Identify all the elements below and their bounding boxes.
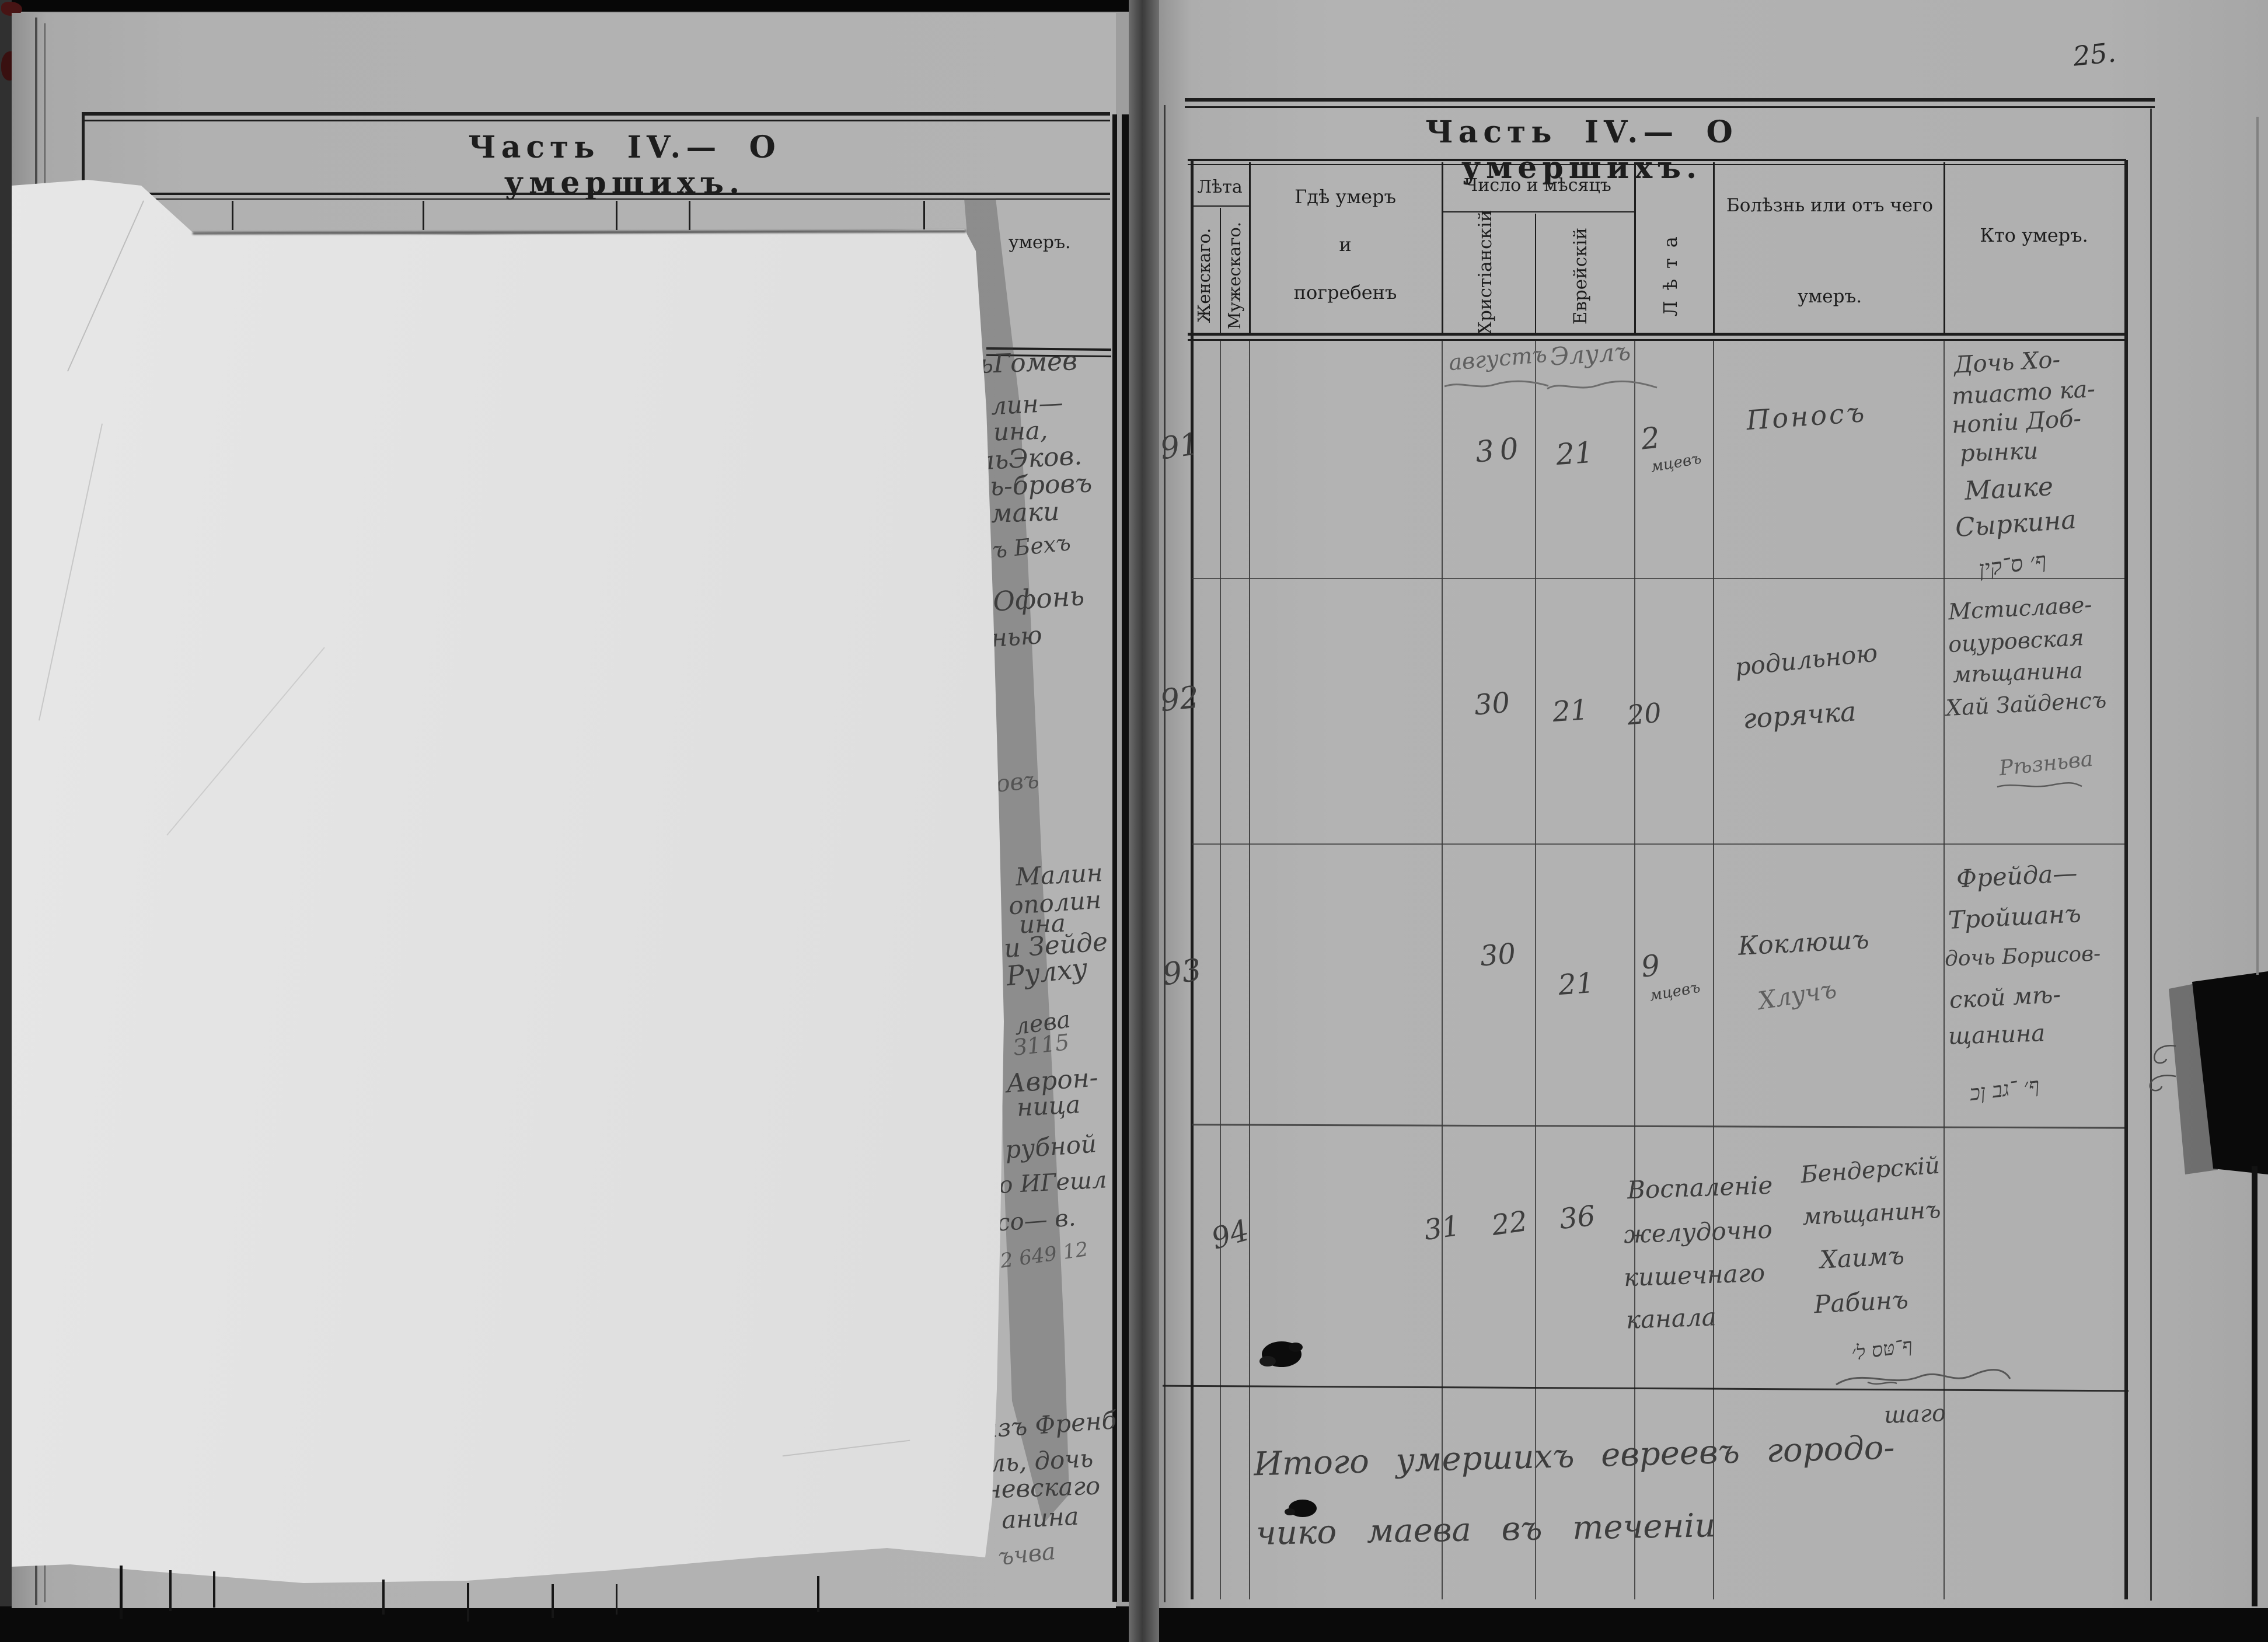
left-bottom-tick-2	[169, 1570, 172, 1611]
column-header-male-text: Мужескаго.	[1224, 222, 1244, 329]
page-number: 25.	[2071, 36, 2117, 72]
right-table-outer-right-line	[2150, 109, 2152, 1601]
left-table-left-border	[82, 114, 85, 231]
row2-signature-flourish	[1996, 781, 2084, 790]
row4-who-line: Хаимъ	[1819, 1241, 1905, 1274]
leta-group-underline	[1191, 205, 1249, 207]
left-fragment: ница	[1016, 1090, 1081, 1122]
column-header-disease-line1: Болѣзнь или отъ чего	[1716, 195, 1943, 216]
column-header-age-vertical-text: Лѣта	[1659, 226, 1681, 316]
col-split-age-disease	[1713, 162, 1715, 333]
col-split-disease-who	[1943, 162, 1945, 333]
left-fragment: анина	[1001, 1502, 1080, 1535]
row4-christian-day: 31	[1422, 1209, 1461, 1247]
row1-who-line: Маике	[1964, 472, 2054, 506]
row1-christian-day: 30	[1474, 431, 1526, 469]
row1-who-line: Дочь Хо-	[1953, 346, 2061, 378]
left-column-tick-3	[616, 201, 617, 230]
row4-disease-line: Воспаленіе	[1627, 1171, 1773, 1205]
ink-blot-summary	[1282, 1494, 1320, 1522]
column-header-jewish-text: Еврейскій	[1570, 228, 1591, 325]
left-header-rule-2	[82, 198, 1110, 200]
row2-jewish-day: 21	[1551, 693, 1589, 728]
right-header-bottom-rule-2	[1188, 339, 2126, 341]
summary-line: чико маева въ теченіи	[1255, 1507, 1715, 1553]
body-line-male-where	[1249, 341, 1250, 1599]
row2-entry-number: 92	[1159, 680, 1201, 719]
left-bottom-tick-8	[817, 1576, 819, 1612]
col-split-female-male	[1220, 208, 1221, 333]
row4-age: 36	[1558, 1200, 1597, 1236]
month-header-jewish-text: Элулъ	[1549, 337, 1631, 371]
left-bottom-tick-1	[120, 1566, 123, 1619]
column-header-leta-group-text: Лѣта	[1197, 177, 1243, 197]
column-header-disease-text-2: умеръ.	[1798, 286, 1862, 307]
row3-jewish-day: 21	[1557, 967, 1595, 1002]
column-header-who: Кто умеръ.	[1946, 224, 2122, 246]
left-column-tick-5	[923, 201, 925, 230]
pen-curl-1	[2149, 1043, 2178, 1066]
column-header-where-text-1: Гдѣ умеръ	[1294, 186, 1396, 208]
left-page-stack-edge-1	[35, 18, 37, 1605]
body-line-christian-jewish	[1535, 341, 1536, 1599]
column-header-male: Мужескаго.	[1224, 220, 1244, 331]
col-split-male-where	[1249, 162, 1251, 333]
column-header-disease-text-1: Болѣзнь или отъ чего	[1726, 195, 1933, 216]
row1-who-line: рынки	[1959, 438, 2039, 468]
left-fragment: нью	[990, 620, 1043, 653]
left-header-rule-1	[82, 193, 1110, 195]
column-header-leta-group: Лѣта	[1191, 177, 1249, 197]
left-column-tick-1	[232, 201, 233, 230]
row4-who-line: Рабинъ	[1813, 1285, 1909, 1319]
row4-signature-flourish	[1833, 1365, 2014, 1390]
month-header-jewish: Элулъ	[1549, 337, 1631, 371]
body-line-age-disease	[1713, 341, 1714, 1599]
left-page	[12, 13, 1116, 1608]
right-page-edge-line	[2252, 1166, 2257, 1606]
right-page-inner-edge	[1164, 105, 1166, 1602]
left-table-top-rule-2	[82, 120, 1110, 121]
column-header-who-text: Кто умеръ.	[1980, 224, 2088, 246]
left-fragment: со— в.	[996, 1204, 1077, 1236]
row4-disease-line: желудочно	[1623, 1215, 1772, 1249]
left-table-top-rule	[82, 112, 1110, 116]
column-header-where-line3: погребенъ	[1255, 281, 1436, 304]
row1-age: 2	[1639, 420, 1662, 456]
body-line-where-christian	[1442, 341, 1443, 1599]
left-bottom-tick-4	[382, 1580, 385, 1615]
row4-jewish-day: 22	[1489, 1205, 1529, 1242]
right-table-top-rule-1	[1185, 98, 2155, 102]
column-header-christian-text: Христіанскій	[1475, 210, 1496, 334]
row3-age: 9	[1639, 948, 1662, 984]
right-table-top-rule-2	[1185, 106, 2155, 108]
column-header-date-group: Число и мѣсяцъ	[1442, 175, 1634, 196]
left-header-who-fragment-text: умеръ.	[1009, 232, 1071, 253]
right-header-rule-2	[1188, 164, 2126, 165]
date-group-underline	[1442, 211, 1634, 212]
row1-entry-number: 91	[1158, 427, 1201, 467]
body-line-jewish-age	[1634, 341, 1635, 1599]
column-header-date-group-text: Число и мѣсяцъ	[1464, 175, 1611, 196]
left-column-tick-4	[689, 201, 690, 230]
left-fragment: говъ	[983, 766, 1041, 799]
row3-who-line: щанина	[1948, 1020, 2046, 1050]
left-fragment: маки	[990, 497, 1060, 529]
left-table-right-border-1	[1112, 114, 1117, 1602]
column-header-disease-line2: умеръ.	[1716, 286, 1943, 307]
row3-entry-number: 93	[1160, 953, 1203, 993]
right-page-edge-line-upper	[2256, 117, 2259, 975]
left-page-title-text: Часть IV.— О умершихъ.	[468, 130, 781, 201]
left-bottom-tick-7	[616, 1584, 617, 1615]
column-header-where-text-3: погребенъ	[1294, 281, 1397, 304]
column-header-female: Женскаго.	[1194, 220, 1214, 331]
column-header-christian: Христіанскій	[1475, 212, 1496, 334]
left-table-right-border-2	[1122, 114, 1129, 1602]
row3-christian-day: 30	[1479, 937, 1517, 972]
summary-continuation: шаго	[1883, 1400, 1946, 1429]
row2-christian-day: 30	[1473, 686, 1512, 721]
left-fragment: ьГомев	[979, 346, 1077, 379]
column-header-female-text: Женскаго.	[1194, 228, 1214, 323]
row4-disease-line: кишечнаго	[1623, 1258, 1765, 1292]
left-fragment: лин—	[990, 388, 1064, 420]
scan-left-edge	[0, 0, 12, 1642]
col-split-christian-jewish	[1535, 214, 1536, 333]
pen-curl-2	[2145, 1072, 2178, 1094]
row-separator-2	[1192, 843, 2124, 845]
right-header-rule-1	[1188, 159, 2126, 161]
left-bottom-tick-6	[552, 1584, 554, 1618]
row1-jewish-day: 21	[1555, 435, 1594, 472]
left-fragment: ина,	[993, 416, 1048, 446]
left-header-who-fragment: умеръ.	[1009, 232, 1071, 253]
column-header-where-text-2: и	[1339, 233, 1351, 256]
month-jewish-flourish	[1545, 379, 1659, 393]
row4-disease-line: канала	[1625, 1302, 1716, 1334]
row2-age: 20	[1626, 697, 1663, 731]
column-header-age-vertical: Лѣта	[1659, 235, 1681, 316]
column-header-where-line2: и	[1255, 233, 1436, 256]
right-table-left-border	[1191, 160, 1194, 1599]
scan-top-band	[0, 0, 1159, 12]
left-page-stack-edge-2	[44, 23, 46, 1602]
left-page-title: Часть IV.— О умершихъ.	[368, 130, 881, 201]
left-fragment: невскаго	[985, 1472, 1101, 1504]
col-split-date-age	[1634, 162, 1636, 333]
body-line-female-male	[1220, 341, 1221, 1599]
column-header-jewish: Еврейскій	[1570, 221, 1591, 332]
column-header-where-line1: Гдѣ умеръ	[1255, 186, 1436, 208]
month-christian-flourish	[1443, 378, 1551, 391]
left-bottom-tick-5	[467, 1583, 469, 1622]
left-column-tick-2	[423, 201, 424, 230]
book-gutter	[1129, 0, 1159, 1642]
row2-who-line: мѣщанина	[1952, 657, 2083, 688]
left-bottom-tick-3	[213, 1571, 215, 1608]
right-table-right-border	[2124, 160, 2128, 1599]
ink-blot-row4	[1254, 1336, 1309, 1374]
scanned-register-spread: Часть IV.— О умершихъ. умеръ. ьГомев лин…	[0, 0, 2268, 1642]
right-header-bottom-rule-1	[1188, 333, 2126, 336]
